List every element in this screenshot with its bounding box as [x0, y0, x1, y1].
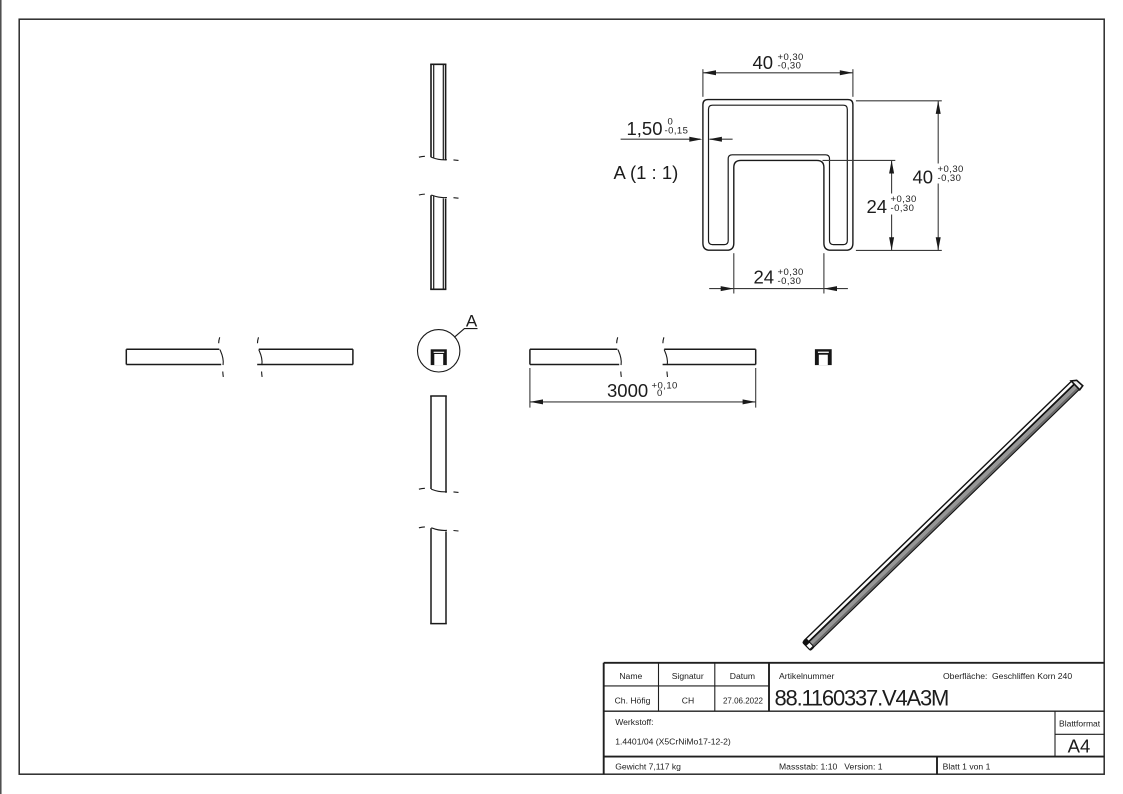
svg-text:0: 0 [657, 388, 663, 399]
svg-text:24: 24 [867, 196, 888, 217]
svg-text:24: 24 [754, 267, 775, 288]
svg-text:-0,30: -0,30 [938, 173, 962, 184]
svg-text:Blatt 1 von 1: Blatt 1 von 1 [943, 762, 991, 772]
svg-text:1.4401/04 (X5CrNiMo17-12-2): 1.4401/04 (X5CrNiMo17-12-2) [615, 737, 731, 747]
svg-text:-0,30: -0,30 [891, 203, 915, 214]
svg-text:40: 40 [753, 52, 774, 73]
svg-text:27.06.2022: 27.06.2022 [723, 696, 764, 705]
svg-text:-0,15: -0,15 [665, 126, 689, 137]
svg-text:Ch. Höfig: Ch. Höfig [615, 695, 651, 705]
svg-text:Gewicht 7,117 kg: Gewicht 7,117 kg [615, 762, 681, 772]
svg-text:88.1160337.V4A3M: 88.1160337.V4A3M [775, 685, 949, 710]
svg-text:Massstab: 1:10: Massstab: 1:10 [779, 762, 837, 772]
svg-text:Blattformat: Blattformat [1059, 719, 1101, 729]
svg-text:-0,30: -0,30 [778, 276, 802, 287]
svg-text:A4: A4 [1068, 736, 1091, 757]
svg-text:A: A [466, 311, 478, 330]
svg-text:-0,30: -0,30 [778, 61, 802, 72]
svg-text:Oberfläche:: Oberfläche: [943, 671, 987, 681]
svg-text:40: 40 [913, 167, 934, 188]
svg-text:1,50: 1,50 [627, 118, 663, 139]
svg-text:Werkstoff:: Werkstoff: [615, 717, 653, 727]
svg-text:A (1 : 1): A (1 : 1) [614, 162, 679, 183]
svg-text:Artikelnummer: Artikelnummer [779, 671, 835, 681]
svg-text:Name: Name [619, 671, 642, 681]
svg-text:+0,10: +0,10 [652, 380, 678, 391]
svg-text:CH: CH [682, 695, 694, 705]
svg-text:3000: 3000 [607, 380, 648, 401]
svg-text:Datum: Datum [730, 671, 755, 681]
svg-text:Geschliffen Korn 240: Geschliffen Korn 240 [992, 671, 1072, 681]
svg-text:Version: 1: Version: 1 [844, 762, 882, 772]
svg-text:Signatur: Signatur [672, 671, 704, 681]
